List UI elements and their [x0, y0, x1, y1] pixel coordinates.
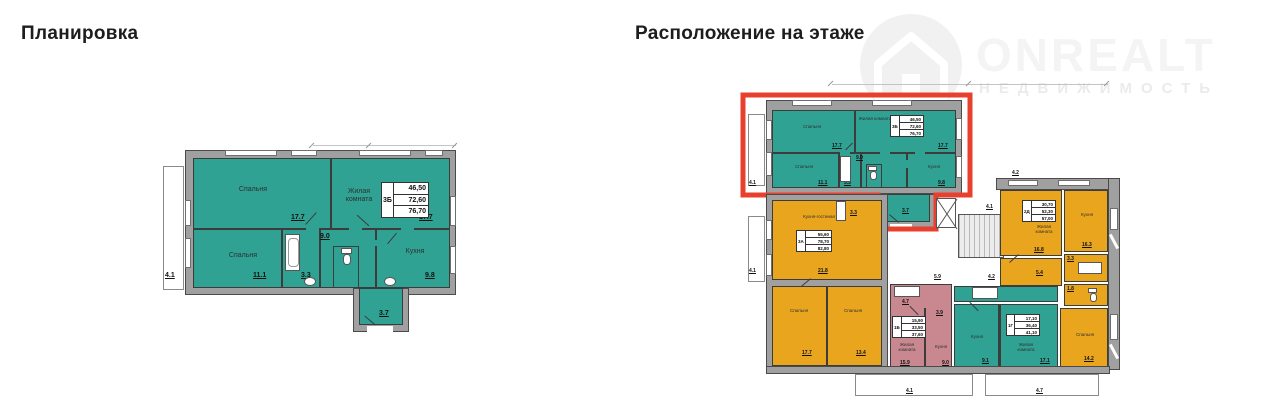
- dimension-tick: [452, 143, 458, 149]
- apt-2d-a3: 57,00: [1032, 215, 1055, 221]
- apt-2d-bath-area: 3.3: [1067, 256, 1074, 262]
- window: [185, 200, 191, 226]
- apt-2d-type: 2Д: [1023, 201, 1031, 221]
- bathtub-icon: [894, 286, 920, 297]
- window: [425, 150, 443, 156]
- door-opening: [401, 228, 414, 230]
- page: { "headings": {"left": "Планировка", "ri…: [0, 0, 1280, 401]
- apt-1g-a2: 36,40: [1015, 322, 1039, 329]
- toilet-bowl-icon: [343, 254, 351, 265]
- apt-3a-balcony-area: 4.1: [749, 268, 756, 274]
- apt-3a-a1: 55,60: [806, 231, 831, 238]
- apt-1g-kitchen-area: 9.1: [982, 358, 989, 364]
- window: [185, 238, 191, 268]
- corridor-area-1: 4.1: [986, 204, 993, 210]
- apt-2d-info-box: 2Д 30,70 52,30 57,00: [1022, 200, 1056, 222]
- window: [450, 246, 456, 274]
- apt-3a-bedroom2-area: 13.4: [856, 350, 866, 356]
- elevator-shaft: [936, 198, 956, 228]
- apt-1b-bath-area: 3.9: [936, 310, 943, 316]
- partition-wall: [281, 230, 283, 288]
- right-facade-wall: [1108, 178, 1120, 370]
- apt-1g-a3: 41,10: [1015, 329, 1039, 335]
- window: [1058, 180, 1090, 186]
- apt-3a-a3: 82,80: [806, 245, 831, 251]
- door-opening: [349, 228, 362, 230]
- partition-wall: [330, 158, 332, 229]
- partition-wall: [375, 230, 377, 240]
- partition-wall: [826, 286, 828, 366]
- apt-2d-a2: 52,30: [1032, 208, 1055, 215]
- bedroom2-label: Спальня: [215, 252, 271, 260]
- apt-2d-a1: 30,70: [1032, 201, 1055, 208]
- apartment-type: 3Б: [382, 183, 393, 217]
- bathtub-icon: [972, 287, 998, 299]
- apt-3a-info-box: 3А 55,60 78,70 82,80: [796, 230, 832, 252]
- apt-1b-hall-area: 4.7: [902, 299, 909, 305]
- apt-2d-bedroom-area: 14.2: [1084, 356, 1094, 362]
- apt-2d-living-area: 16.8: [1034, 247, 1044, 253]
- apt-2d-living-label: Жилая комната: [1028, 224, 1060, 234]
- window: [225, 150, 277, 156]
- apt-3a-bedroom1-area: 17.7: [802, 350, 812, 356]
- apartment-plan-3b: 4.1 Спальня 17.7 Жилая комната 17.7 3Б 4…: [163, 142, 463, 342]
- apt-3a-bath-area: 3.3: [850, 210, 857, 216]
- window: [291, 150, 317, 156]
- apt-1g-info-box: 1Г 17,10 36,40 41,10: [1006, 314, 1040, 336]
- apt-1g-hall: [954, 286, 1058, 302]
- apt-3a-bedroom2-label: Спальня: [832, 308, 874, 313]
- living-room-label: Жилая комната: [335, 188, 383, 204]
- door-opening: [306, 228, 319, 230]
- apt-3a-a2: 78,70: [806, 238, 831, 245]
- balcony: [855, 374, 973, 396]
- total-area-value: 76,70: [394, 206, 428, 217]
- apartment-interior: [193, 158, 450, 288]
- apt-2d-wc-area: 1.8: [1067, 286, 1074, 292]
- balcony2-area: 4.7: [1036, 388, 1043, 394]
- bathtub-icon: [1078, 262, 1102, 274]
- apt-3a-bedroom1-label: Спальня: [778, 308, 820, 313]
- apt-1b-type: 1Б: [893, 317, 901, 337]
- apt-1g-type: 1Г: [1007, 315, 1014, 335]
- sink-icon: [304, 277, 316, 286]
- dimension-line: [313, 145, 456, 146]
- bedroom1-area: 17.7: [291, 214, 305, 221]
- balcony-area: 4.1: [165, 272, 175, 279]
- bathtub-icon: [836, 201, 846, 221]
- entry-door-opening: [367, 326, 393, 332]
- hall-area: 9.0: [320, 233, 330, 240]
- apt-1b-a1: 15,90: [902, 317, 925, 324]
- elevator-x-icon: [937, 199, 957, 229]
- staircase: [958, 214, 1004, 258]
- living-area-value: 46,50: [394, 183, 428, 195]
- entry-hall: [359, 288, 403, 325]
- apt-1g-living-area: 17.1: [1040, 358, 1050, 364]
- apt-2d-kitchen-label: Кухня: [1074, 212, 1100, 217]
- balcony1-area: 4.1: [906, 388, 913, 394]
- toilet-bowl-icon: [1090, 293, 1097, 302]
- partition-wall: [998, 304, 1000, 368]
- corridor-area-3: 4.2: [988, 274, 995, 280]
- bedroom2-area: 11.1: [253, 272, 266, 279]
- apt-1b-info-box: 1Б 15,90 33,50 37,60: [892, 316, 926, 338]
- kitchen-area: 9.8: [425, 272, 435, 279]
- corridor-area-2: 5.9: [934, 274, 941, 280]
- apt-2d-kitchen-area: 16.3: [1082, 242, 1092, 248]
- entry-hall-area: 3.7: [379, 310, 389, 317]
- apt-2d-bedroom-label: Спальня: [1068, 332, 1102, 337]
- usable-area-value: 72,60: [394, 195, 428, 207]
- apt-1g-living-label: Жилая комната: [1010, 342, 1042, 352]
- window: [1110, 208, 1118, 230]
- apt-1g-kitchen-label: Кухня: [962, 334, 992, 339]
- section-title-layout: Планировка: [21, 23, 138, 45]
- bottom-facade-wall: [766, 366, 1110, 374]
- apt-3a-type: 3А: [797, 231, 805, 251]
- apt-1b-kitchen-label: Кухня: [928, 344, 954, 349]
- kitchen-sink-icon: [384, 277, 396, 286]
- bedroom1-label: Спальня: [221, 186, 285, 194]
- partition-wall: [375, 246, 377, 288]
- apt-1b-a3: 37,60: [902, 331, 925, 337]
- apt-1b-living-label: Жилая комната: [892, 342, 922, 352]
- kitchen-label: Кухня: [393, 248, 437, 256]
- apt-1b-a2: 33,50: [902, 324, 925, 331]
- window: [1008, 180, 1038, 186]
- section-title-floor-location: Расположение на этаже: [635, 23, 865, 45]
- bathtub-icon: [285, 234, 300, 271]
- apt-2d-top-area: 4.2: [1012, 170, 1019, 176]
- apt-1g-a1: 17,10: [1015, 315, 1039, 322]
- window: [359, 150, 411, 156]
- apt-3a-kitchen-living-area: 21.8: [818, 268, 828, 274]
- bathtub-inner: [288, 238, 299, 267]
- window: [1110, 314, 1118, 340]
- floor-plan: 4.1 Спальня 17.7 Жилая комната 17.7 3Б 4…: [740, 58, 1150, 403]
- apartment-info-box: 3Б 46,50 72,60 76,70: [381, 182, 429, 218]
- apt-2d-hall-area: 5.4: [1036, 270, 1043, 276]
- window: [450, 196, 456, 226]
